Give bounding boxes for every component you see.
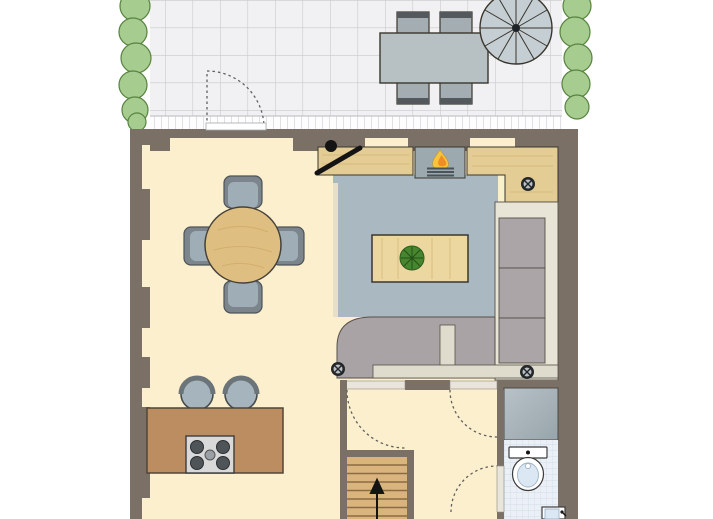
bar-stool — [225, 378, 257, 410]
floor-plan-page — [0, 0, 713, 519]
bush — [560, 17, 590, 47]
appliance-oven — [415, 147, 465, 178]
bathroom-door-panel — [497, 466, 504, 512]
bush — [121, 43, 151, 73]
bush — [564, 44, 592, 72]
tall-cabinets — [495, 202, 558, 380]
bush — [128, 113, 146, 131]
outdoor-chair — [397, 82, 429, 104]
staircase — [347, 450, 414, 519]
door-panel — [450, 381, 497, 389]
bush — [565, 95, 589, 119]
window-left-4 — [142, 388, 150, 407]
floor-plan-canvas — [0, 0, 713, 519]
outdoor-chair — [440, 82, 472, 104]
drain-screw-icon — [520, 365, 534, 379]
kitchen-table — [372, 235, 468, 282]
window-left-1 — [142, 145, 150, 189]
shower — [504, 388, 558, 440]
hedge-left — [119, 0, 151, 131]
window-left-5 — [142, 498, 150, 519]
wall-right — [558, 129, 578, 519]
terrace-door-panel — [206, 123, 266, 130]
dining-chair — [224, 176, 262, 208]
terrace — [119, 0, 592, 131]
cabinet-door — [499, 268, 545, 318]
outdoor-table — [380, 33, 488, 83]
window-left-2 — [142, 240, 150, 287]
window-top-1 — [170, 138, 293, 151]
drain-screw-icon — [331, 362, 345, 376]
counter-divider — [440, 325, 455, 368]
bush — [562, 70, 590, 98]
drain-screw-icon — [521, 177, 535, 191]
bar-stool — [181, 378, 213, 410]
outdoor-chair — [397, 12, 429, 34]
dining-chair — [224, 281, 262, 313]
door-panel — [345, 381, 405, 389]
round-dining-table — [205, 207, 281, 283]
plant-icon — [400, 246, 424, 270]
cooktop — [186, 436, 234, 473]
bush — [119, 71, 147, 99]
washbasin — [542, 507, 566, 519]
window-left-3 — [142, 328, 150, 357]
cabinet-door — [499, 218, 545, 268]
bathroom — [497, 388, 566, 519]
outdoor-chair — [440, 12, 472, 34]
parasol-icon — [480, 0, 552, 64]
cabinet-door — [499, 318, 545, 363]
kitchen-side-strip — [333, 183, 338, 317]
bush — [119, 18, 147, 46]
kitchen — [317, 140, 558, 380]
hedge-right — [560, 0, 592, 119]
